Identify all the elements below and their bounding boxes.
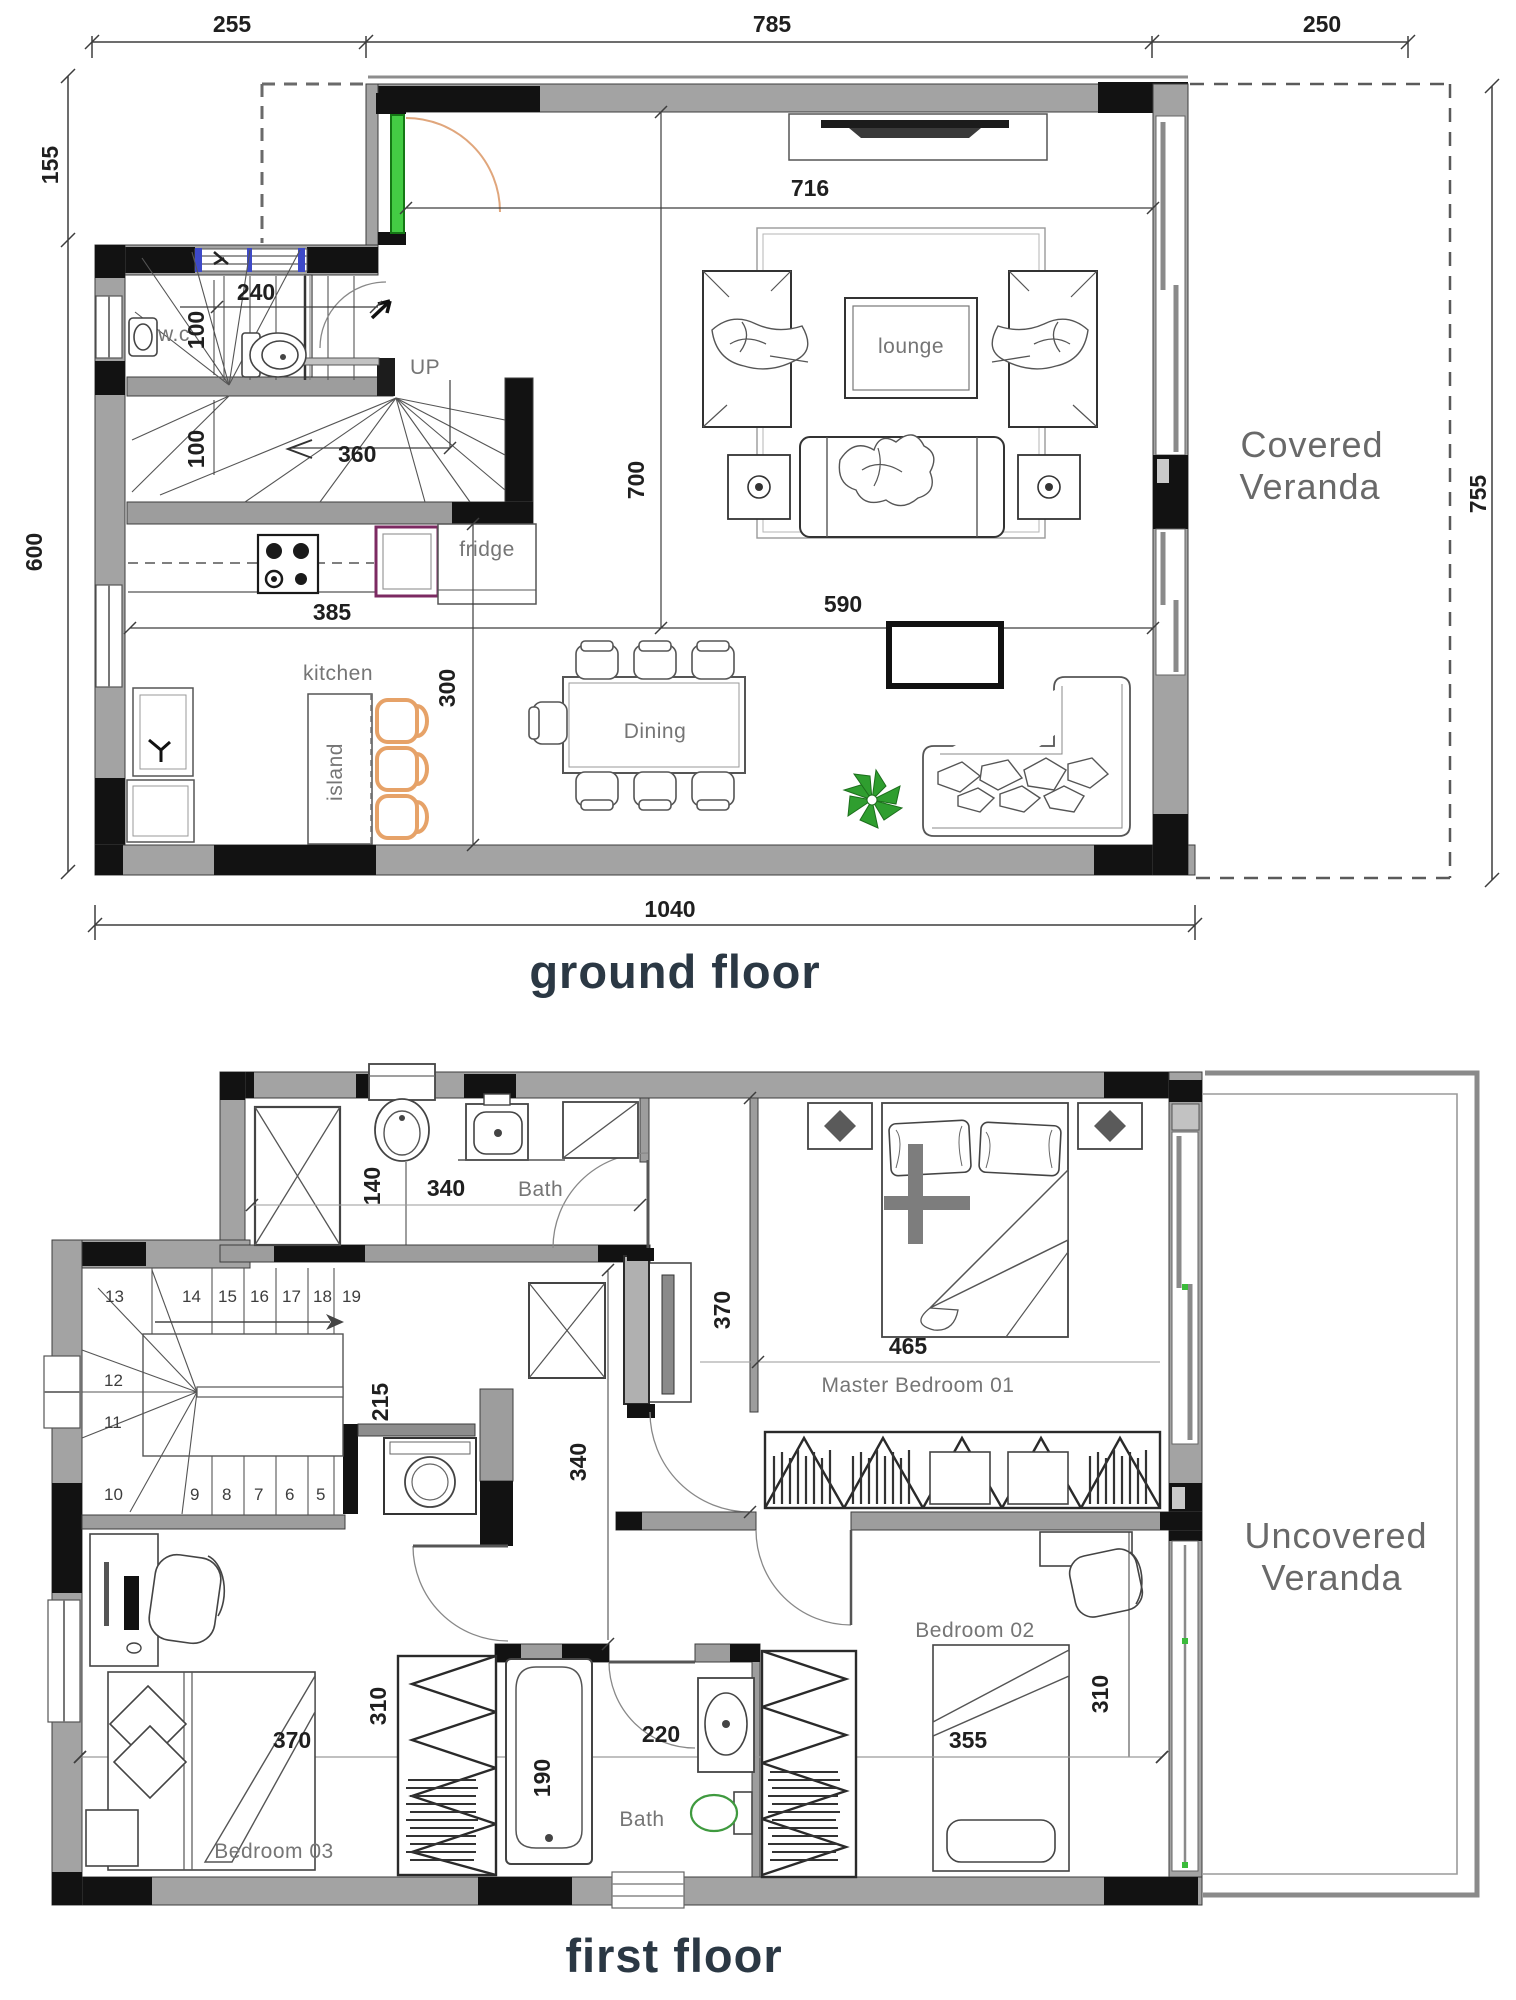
svg-text:310: 310 — [1087, 1675, 1113, 1713]
svg-text:island: island — [324, 743, 347, 801]
svg-text:Master Bedroom 01: Master Bedroom 01 — [822, 1374, 1015, 1397]
svg-text:370: 370 — [273, 1727, 311, 1753]
svg-text:355: 355 — [949, 1727, 988, 1753]
svg-text:100: 100 — [183, 311, 209, 349]
svg-text:7: 7 — [254, 1485, 263, 1504]
svg-text:300: 300 — [434, 669, 460, 707]
svg-text:220: 220 — [642, 1721, 680, 1747]
svg-text:Veranda: Veranda — [1239, 466, 1380, 507]
svg-text:1040: 1040 — [644, 896, 695, 922]
svg-text:370: 370 — [709, 1291, 735, 1329]
svg-text:755: 755 — [1465, 475, 1491, 514]
svg-text:UP: UP — [410, 356, 440, 379]
svg-text:10: 10 — [104, 1485, 123, 1504]
svg-text:5: 5 — [316, 1485, 325, 1504]
svg-text:155: 155 — [37, 146, 63, 185]
svg-text:13: 13 — [105, 1287, 124, 1306]
svg-text:340: 340 — [427, 1175, 465, 1201]
svg-text:Veranda: Veranda — [1261, 1557, 1402, 1598]
svg-text:600: 600 — [21, 533, 47, 571]
svg-text:9: 9 — [190, 1485, 199, 1504]
svg-text:kitchen: kitchen — [303, 662, 373, 685]
svg-text:360: 360 — [338, 441, 376, 467]
svg-text:340: 340 — [565, 1443, 591, 1481]
svg-text:250: 250 — [1303, 11, 1341, 37]
svg-text:190: 190 — [529, 1759, 555, 1797]
svg-text:Dining: Dining — [624, 720, 687, 743]
svg-text:785: 785 — [753, 11, 792, 37]
svg-text:310: 310 — [365, 1687, 391, 1725]
svg-text:590: 590 — [824, 591, 862, 617]
svg-text:385: 385 — [313, 599, 352, 625]
svg-text:240: 240 — [237, 279, 275, 305]
svg-text:100: 100 — [183, 430, 209, 468]
svg-text:first floor: first floor — [565, 1929, 782, 1982]
svg-text:fridge: fridge — [459, 538, 515, 561]
svg-text:Bedroom 02: Bedroom 02 — [915, 1619, 1034, 1642]
svg-text:17: 17 — [282, 1287, 301, 1306]
svg-text:19: 19 — [342, 1287, 361, 1306]
svg-text:14: 14 — [182, 1287, 201, 1306]
svg-text:12: 12 — [104, 1371, 123, 1390]
svg-text:16: 16 — [250, 1287, 269, 1306]
svg-text:8: 8 — [222, 1485, 231, 1504]
svg-text:Bedroom 03: Bedroom 03 — [214, 1840, 333, 1863]
svg-text:215: 215 — [367, 1383, 393, 1422]
svg-text:465: 465 — [889, 1333, 928, 1359]
svg-text:140: 140 — [359, 1167, 385, 1205]
svg-text:ground floor: ground floor — [529, 945, 820, 998]
svg-text:Bath: Bath — [619, 1808, 664, 1831]
svg-text:Uncovered: Uncovered — [1244, 1515, 1427, 1556]
svg-text:15: 15 — [218, 1287, 237, 1306]
svg-text:18: 18 — [313, 1287, 332, 1306]
svg-text:716: 716 — [791, 175, 829, 201]
svg-text:700: 700 — [623, 461, 649, 499]
svg-text:Bath: Bath — [518, 1178, 563, 1201]
svg-text:255: 255 — [213, 11, 252, 37]
svg-text:lounge: lounge — [878, 335, 944, 358]
svg-text:11: 11 — [104, 1413, 122, 1432]
svg-text:Covered: Covered — [1240, 424, 1383, 465]
svg-text:6: 6 — [285, 1485, 294, 1504]
